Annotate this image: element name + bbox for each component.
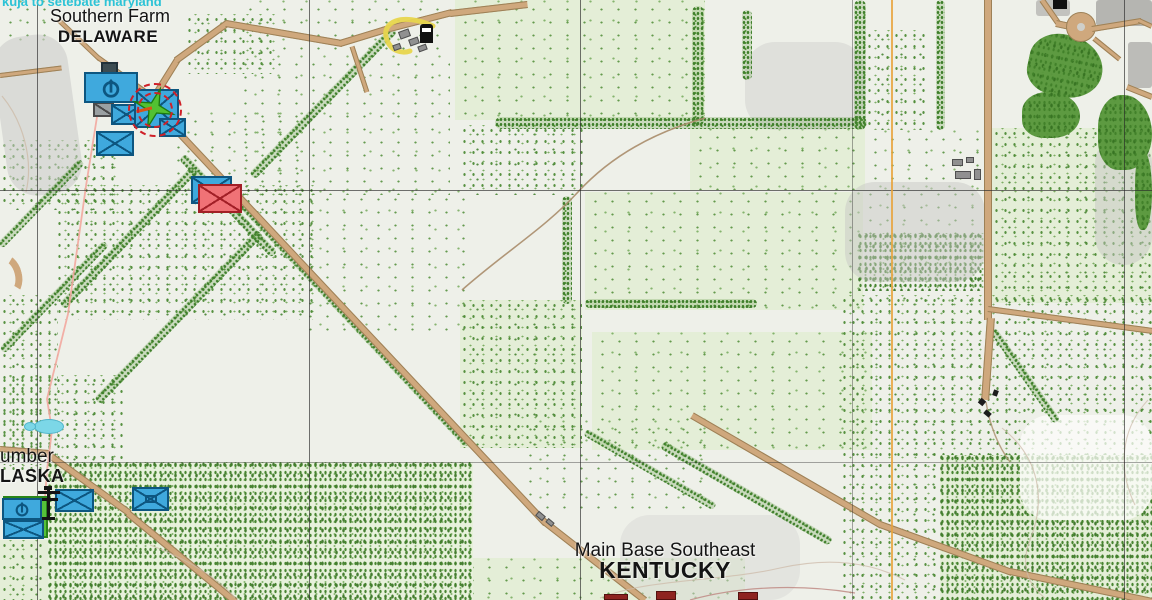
hedgerow [562, 196, 572, 304]
place-subtitle-alaska: LASKA [0, 466, 80, 487]
hedgerow [742, 10, 752, 80]
grid-line-vertical [852, 0, 853, 600]
grid-line-horizontal [0, 462, 1152, 463]
building [417, 44, 428, 53]
town-block [1128, 42, 1152, 88]
grid-line-vertical [309, 0, 310, 600]
building [974, 169, 981, 180]
road-segment [984, 0, 992, 320]
place-subtitle-delaware: DELAWARE [28, 27, 188, 47]
building [955, 171, 971, 179]
mechanized-box [145, 495, 157, 503]
forest [1022, 92, 1080, 138]
town-building-icon [1053, 0, 1067, 9]
place-title-lumber: umber [0, 446, 70, 468]
fuel-station-icon [420, 24, 433, 43]
hill-shading [845, 182, 985, 282]
hedgerow [692, 6, 704, 126]
roundabout-center [1077, 23, 1085, 31]
map-canvas[interactable]: kuja to setebate maryland Southern Farm … [0, 0, 1152, 600]
orange-boundary-line [891, 0, 893, 600]
building-red [656, 591, 676, 600]
unit-marker-blufor-infantry[interactable] [3, 520, 44, 539]
road-hook [0, 251, 27, 301]
vegetation-patch [460, 125, 585, 195]
unit-marker-opfor-infantry[interactable] [198, 184, 242, 213]
unit-marker-blufor-hq[interactable] [2, 498, 42, 520]
place-subtitle-kentucky: KENTUCKY [540, 557, 790, 584]
pond [24, 422, 36, 431]
pond [34, 419, 64, 434]
grid-line-horizontal [0, 190, 1152, 191]
vegetation-patch [300, 190, 465, 335]
objective-ring-inner [137, 92, 173, 128]
building-red [604, 594, 628, 600]
unit-marker-blufor-infantry[interactable] [55, 489, 94, 512]
building [952, 159, 963, 166]
grid-line-vertical [580, 0, 581, 600]
building [966, 157, 974, 163]
vegetation-patch [520, 420, 710, 515]
building-red [738, 592, 758, 600]
vegetation-patch [865, 30, 925, 130]
place-title-southern-farm: Southern Farm [30, 6, 190, 27]
unit-marker-blufor-infantry[interactable] [96, 131, 134, 156]
hedgerow [495, 117, 867, 129]
unit-marker-blufor-mech-infantry[interactable] [132, 487, 169, 511]
hedgerow [585, 299, 757, 308]
field [585, 192, 863, 310]
hill-shading [1020, 415, 1152, 520]
hedgerow [936, 0, 945, 130]
field [690, 128, 865, 190]
grid-line-vertical [1124, 0, 1125, 600]
forest [48, 462, 473, 600]
hedgerow [854, 0, 866, 130]
